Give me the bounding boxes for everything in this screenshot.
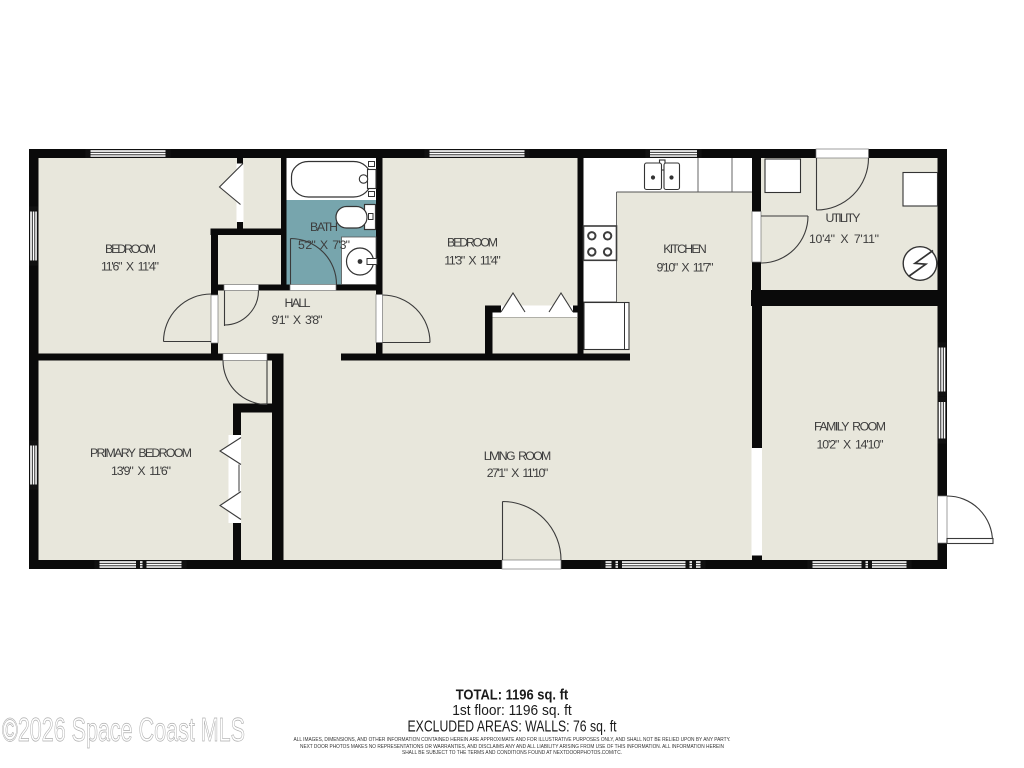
svg-text:PRIMARY BEDROOM: PRIMARY BEDROOM — [90, 446, 192, 460]
svg-text:UTILITY: UTILITY — [826, 211, 861, 225]
svg-text:HALL: HALL — [285, 296, 311, 310]
svg-text:10'4" X 7'11": 10'4" X 7'11" — [809, 232, 879, 246]
svg-text:11'3" X 11'4": 11'3" X 11'4" — [444, 254, 501, 268]
svg-text:SHALL BE SUBJECT TO THE TERMS: SHALL BE SUBJECT TO THE TERMS AND CONDIT… — [402, 750, 622, 756]
svg-text:BEDROOM: BEDROOM — [105, 242, 156, 256]
svg-text:1st floor: 1196 sq. ft: 1st floor: 1196 sq. ft — [452, 702, 572, 719]
svg-text:9'10" X 11'7": 9'10" X 11'7" — [657, 261, 714, 275]
svg-text:NEXT DOOR PHOTOS MAKES NO REPR: NEXT DOOR PHOTOS MAKES NO REPRESENTATION… — [300, 744, 724, 750]
svg-text:13'9" X 11'6": 13'9" X 11'6" — [111, 464, 171, 478]
svg-text:10'2" X 14'10": 10'2" X 14'10" — [817, 438, 884, 452]
svg-text:TOTAL: 1196 sq. ft: TOTAL: 1196 sq. ft — [456, 687, 569, 704]
svg-text:KITCHEN: KITCHEN — [663, 242, 707, 256]
svg-text:11'6" X 11'4": 11'6" X 11'4" — [101, 260, 159, 274]
svg-text:EXCLUDED AREAS: WALLS: 76 sq.: EXCLUDED AREAS: WALLS: 76 sq. ft — [408, 719, 618, 736]
svg-text:BEDROOM: BEDROOM — [447, 236, 498, 250]
svg-text:5'2" X 7'3": 5'2" X 7'3" — [298, 238, 350, 252]
svg-text:27'1" X 11'10": 27'1" X 11'10" — [487, 466, 549, 480]
svg-text:LIVING ROOM: LIVING ROOM — [484, 449, 552, 463]
svg-text:BATH: BATH — [310, 220, 338, 234]
svg-text:9'1" X 3'8": 9'1" X 3'8" — [272, 313, 323, 327]
svg-text:©2026 Space Coast MLS: ©2026 Space Coast MLS — [2, 711, 245, 748]
svg-text:ALL IMAGES, DIMENSIONS, AND OT: ALL IMAGES, DIMENSIONS, AND OTHER INFORM… — [294, 737, 731, 743]
svg-text:FAMILY ROOM: FAMILY ROOM — [814, 420, 886, 434]
